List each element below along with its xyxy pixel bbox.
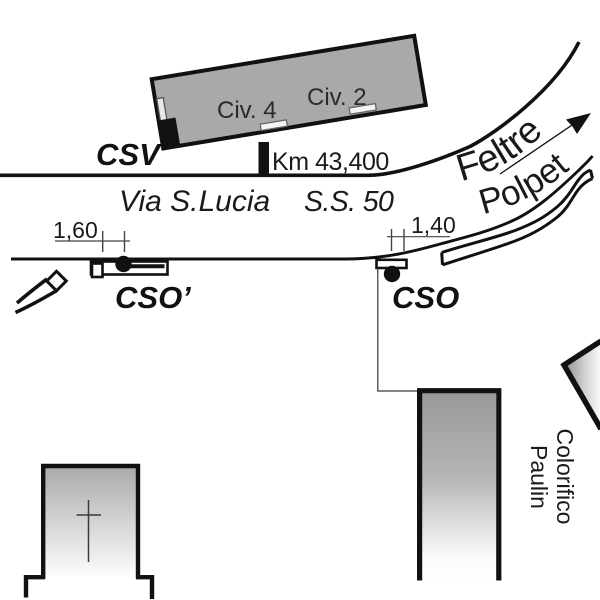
svg-text:Paulin: Paulin: [526, 445, 552, 509]
svg-text:Via S.Lucia: Via S.Lucia: [119, 185, 270, 218]
svg-text:Civ. 2: Civ. 2: [307, 84, 367, 111]
svg-text:Km 43,400: Km 43,400: [272, 148, 389, 176]
svg-text:CSO’: CSO’: [115, 280, 191, 315]
svg-text:1,60: 1,60: [53, 217, 98, 243]
svg-text:CSV: CSV: [96, 137, 162, 172]
svg-text:CSO: CSO: [392, 280, 459, 315]
svg-text:Colorifico: Colorifico: [552, 429, 578, 525]
svg-text:Civ. 4: Civ. 4: [217, 97, 277, 124]
svg-text:1,40: 1,40: [411, 212, 456, 238]
svg-text:S.S. 50: S.S. 50: [304, 186, 394, 218]
